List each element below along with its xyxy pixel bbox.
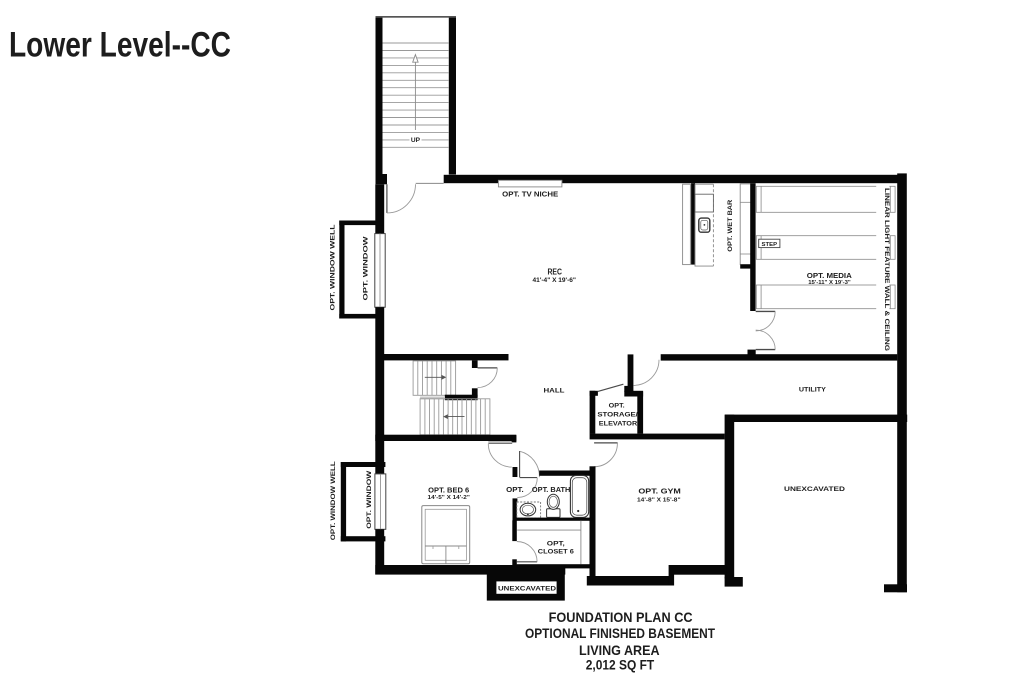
svg-text:15'-11" X 19'-3": 15'-11" X 19'-3" (808, 280, 851, 286)
svg-text:CLOSET 6: CLOSET 6 (538, 549, 574, 556)
svg-text:OPT. TV NICHE: OPT. TV NICHE (502, 191, 558, 198)
svg-text:FOUNDATION PLAN CC: FOUNDATION PLAN CC (549, 610, 693, 625)
svg-text:OPT.: OPT. (506, 487, 524, 494)
svg-text:OPT. WINDOW: OPT. WINDOW (363, 236, 370, 300)
svg-text:REC: REC (547, 268, 562, 277)
svg-text:OPT. WINDOW WELL: OPT. WINDOW WELL (330, 461, 337, 540)
svg-text:41'-4" X 19'-6": 41'-4" X 19'-6" (533, 277, 577, 284)
svg-text:LIVING AREA: LIVING AREA (579, 643, 660, 658)
svg-text:Lower Level--CC: Lower Level--CC (9, 25, 231, 64)
svg-text:OPT. WINDOW: OPT. WINDOW (366, 471, 373, 529)
svg-text:OPT,: OPT, (547, 540, 565, 547)
svg-text:UTILITY: UTILITY (799, 387, 827, 394)
svg-text:ELEVATOR: ELEVATOR (599, 421, 638, 428)
svg-text:LINEAR LIGHT FEATURE WALL & CE: LINEAR LIGHT FEATURE WALL & CEILING (883, 188, 889, 351)
svg-text:OPT. MEDIA: OPT. MEDIA (807, 271, 853, 280)
svg-text:STEP: STEP (762, 242, 778, 248)
svg-text:OPT.: OPT. (609, 403, 625, 410)
svg-text:STORAGE/: STORAGE/ (597, 412, 638, 419)
svg-text:HALL: HALL (544, 387, 565, 394)
svg-text:OPTIONAL FINISHED BASEMENT: OPTIONAL FINISHED BASEMENT (525, 626, 716, 641)
svg-text:2,012 SQ FT: 2,012 SQ FT (586, 658, 655, 673)
svg-text:OPT. BED 6: OPT. BED 6 (428, 487, 469, 494)
svg-text:UNEXCAVATED: UNEXCAVATED (784, 486, 845, 493)
svg-text:UP: UP (411, 137, 421, 144)
svg-text:OPT. WINDOW WELL: OPT. WINDOW WELL (330, 224, 337, 310)
svg-text:14'-5" X 14'-2": 14'-5" X 14'-2" (428, 495, 471, 501)
svg-text:14'-8" X 15'-8": 14'-8" X 15'-8" (637, 498, 681, 504)
svg-text:OPT. WET BAR: OPT. WET BAR (727, 200, 734, 252)
svg-text:OPT. GYM: OPT. GYM (638, 487, 681, 496)
svg-text:UNEXCAVATED: UNEXCAVATED (498, 586, 557, 593)
